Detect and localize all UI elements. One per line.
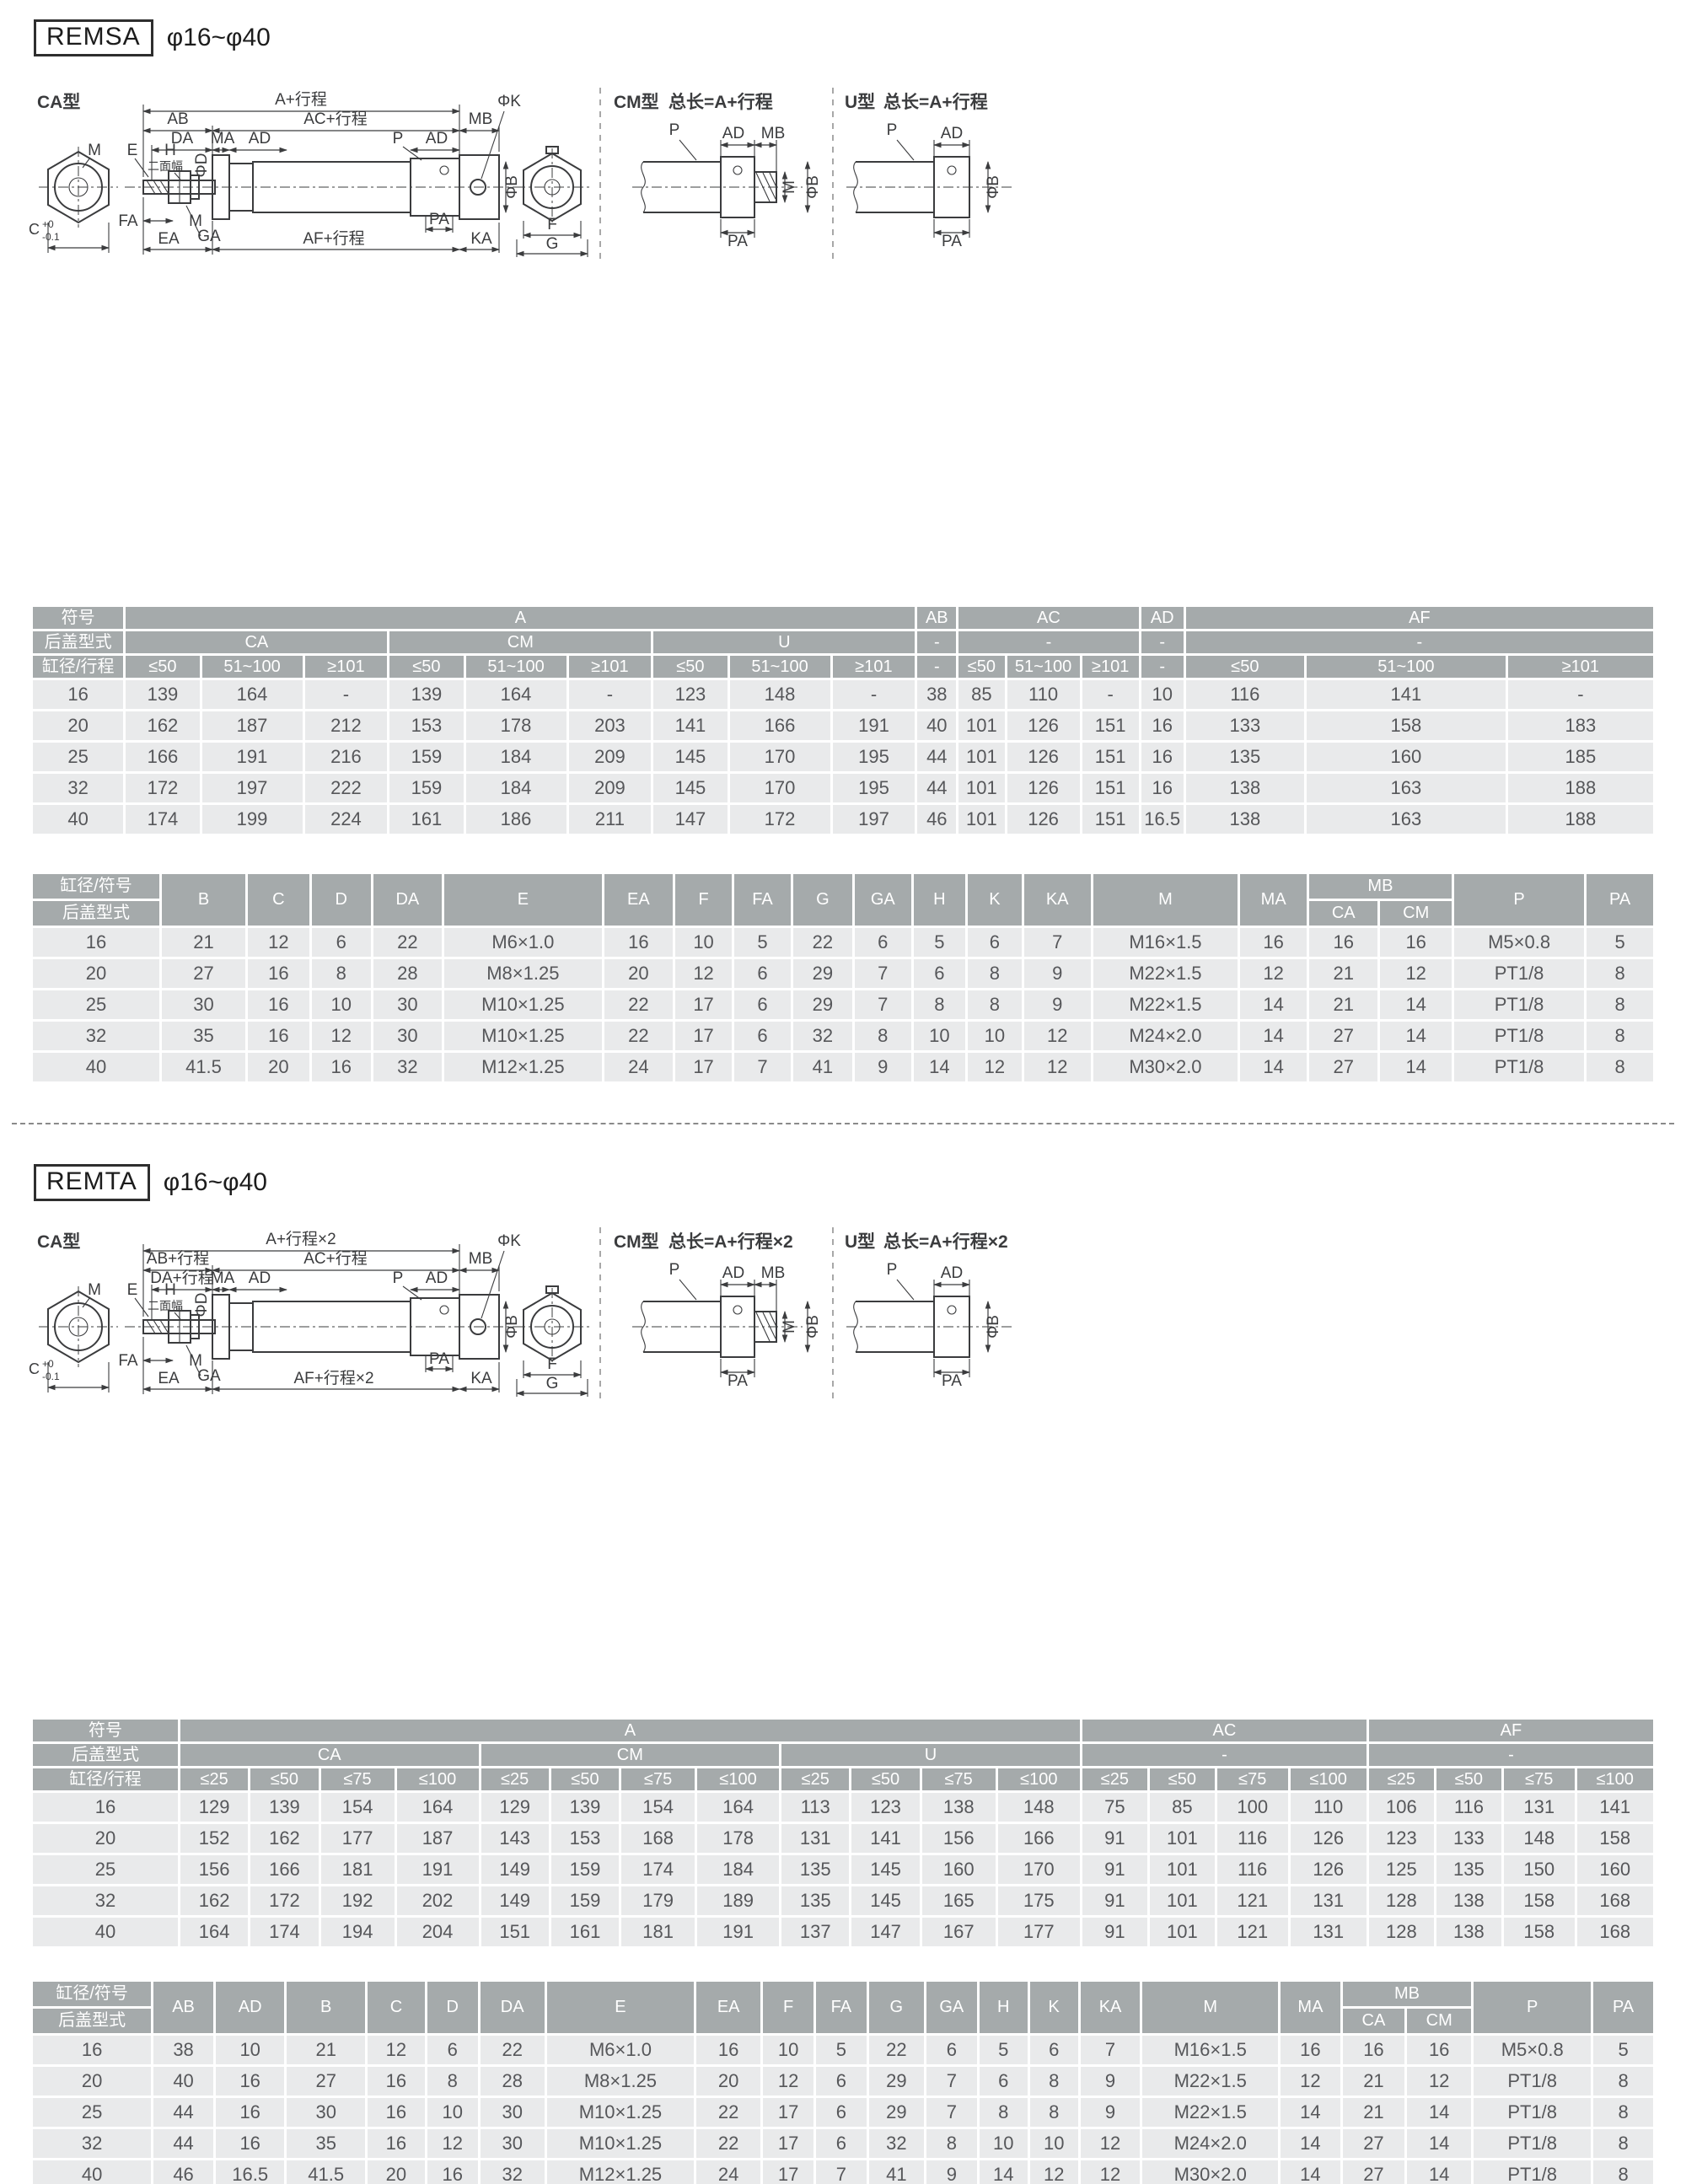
- value-cell: 20: [603, 958, 674, 990]
- value-cell: 5: [814, 2035, 867, 2066]
- column-header: -: [958, 631, 1140, 655]
- value-cell: 5: [912, 927, 966, 958]
- column-header: CA: [179, 1743, 480, 1768]
- dim-label: P: [669, 121, 680, 139]
- value-cell: M16×1.5: [1092, 927, 1239, 958]
- value-cell: PT1/8: [1473, 2128, 1592, 2160]
- value-cell: 126: [1006, 804, 1081, 835]
- value-cell: 141: [1305, 679, 1506, 711]
- value-cell: 164: [201, 679, 303, 711]
- value-cell: 110: [1289, 1792, 1367, 1823]
- column-header: H: [912, 873, 966, 927]
- table-row: 404616.541.5201632M12×1.2524177419141212…: [32, 2160, 1655, 2184]
- value-cell: M10×1.25: [545, 2128, 695, 2160]
- value-cell: 16: [1341, 2035, 1405, 2066]
- column-header: -: [1140, 631, 1184, 655]
- value-cell: 167: [921, 1917, 996, 1948]
- value-cell: 91: [1081, 1823, 1148, 1854]
- dim-label: AD: [249, 1269, 271, 1287]
- column-header: ≤100: [696, 1768, 781, 1792]
- technical-drawing: CA型 M C +0 -0.1: [0, 78, 1686, 276]
- value-cell: 170: [996, 1854, 1081, 1886]
- column-header: M: [1141, 1981, 1280, 2035]
- value-cell: 14: [1280, 2097, 1342, 2128]
- value-cell: 8: [1028, 2097, 1079, 2128]
- value-cell: 202: [395, 1886, 480, 1917]
- dimension-table: 缸径/符号后盖型式ABADBCDDAEEAFFAGGAHKKAMMAMBPPAC…: [30, 1979, 1656, 2184]
- column-header: A: [125, 606, 916, 631]
- value-cell: 8: [1586, 990, 1655, 1021]
- value-cell: 10: [912, 1021, 966, 1052]
- value-cell: 211: [567, 804, 652, 835]
- value-cell: 147: [652, 804, 728, 835]
- bore-size-cell: 25: [32, 1854, 180, 1886]
- dim-label: A+行程×2: [266, 1230, 336, 1248]
- value-cell: 30: [479, 2128, 545, 2160]
- column-header: ≥101: [303, 655, 389, 679]
- value-cell: M22×1.5: [1141, 2097, 1280, 2128]
- bore-size-cell: 32: [32, 773, 125, 804]
- column-header: 51~100: [1305, 655, 1506, 679]
- bore-size-cell: 16: [32, 927, 161, 958]
- u-type-view: U型 总长=A+行程 P AD ΦB PA: [845, 92, 1012, 250]
- value-cell: 22: [603, 1021, 674, 1052]
- catalog-page: REMSA φ16~φ40 CA型 M C +0 -0.1: [0, 0, 1686, 2184]
- value-cell: 151: [1081, 711, 1140, 742]
- value-cell: 41: [792, 1052, 853, 1083]
- value-cell: 8: [925, 2128, 978, 2160]
- column-header: B: [286, 1981, 366, 2035]
- value-cell: 135: [781, 1886, 851, 1917]
- value-cell: 17: [674, 1052, 733, 1083]
- cm-type-view: CM型 总长=A+行程 P AD MB M ΦB: [614, 92, 822, 250]
- value-cell: 177: [996, 1917, 1081, 1948]
- value-cell: 10: [1140, 679, 1184, 711]
- bore-size-cell: 40: [32, 1917, 180, 1948]
- value-cell: 5: [978, 2035, 1028, 2066]
- value-cell: 6: [925, 2035, 978, 2066]
- dim-label: AF+行程: [303, 229, 364, 248]
- dimension-table: 缸径/符号后盖型式BCDDAEEAFFAGGAHKKAMMAMBPPACACM1…: [30, 872, 1656, 1084]
- value-cell: 41: [867, 2160, 925, 2184]
- value-cell: 27: [1341, 2128, 1405, 2160]
- value-cell: 159: [389, 742, 464, 773]
- value-cell: 22: [792, 927, 853, 958]
- bore-size-cell: 40: [32, 2160, 153, 2184]
- value-cell: 8: [1586, 1052, 1655, 1083]
- value-cell: 10: [978, 2128, 1028, 2160]
- dim-label: AF+行程×2: [293, 1369, 373, 1387]
- column-header: AB: [153, 1981, 215, 2035]
- table-row: 2516619121615918420914517019544101126151…: [32, 742, 1655, 773]
- dimension-table: 符号AABACADAF后盖型式CACMU----缸径/行程≤5051~100≥1…: [30, 604, 1656, 836]
- column-header: EA: [603, 873, 674, 927]
- value-cell: 158: [1502, 1886, 1576, 1917]
- value-cell: 156: [179, 1854, 249, 1886]
- value-cell: 158: [1502, 1917, 1576, 1948]
- dim-label: C: [29, 1360, 40, 1377]
- value-cell: 32: [479, 2160, 545, 2184]
- value-cell: 16: [366, 2097, 426, 2128]
- column-header: ≥101: [1506, 655, 1654, 679]
- dim-label: P: [393, 130, 404, 148]
- value-cell: M24×2.0: [1141, 2128, 1280, 2160]
- value-cell: 164: [464, 679, 567, 711]
- value-cell: 160: [921, 1854, 996, 1886]
- value-cell: 30: [286, 2097, 366, 2128]
- bore-size-cell: 25: [32, 742, 125, 773]
- value-cell: 6: [426, 2035, 479, 2066]
- value-cell: M5×0.8: [1473, 2035, 1592, 2066]
- value-cell: 197: [831, 804, 916, 835]
- column-header: ≤50: [250, 1768, 319, 1792]
- value-cell: 22: [372, 927, 443, 958]
- column-header: CA: [1341, 2008, 1405, 2035]
- value-cell: 6: [814, 2097, 867, 2128]
- value-cell: 168: [1576, 1886, 1654, 1917]
- value-cell: 141: [652, 711, 728, 742]
- dim-label: PA: [728, 1372, 748, 1390]
- column-header: CM: [389, 631, 652, 655]
- column-header: ≤25: [179, 1768, 249, 1792]
- bore-size-cell: 32: [32, 2128, 153, 2160]
- value-cell: 106: [1367, 1792, 1435, 1823]
- value-cell: 116: [1184, 679, 1305, 711]
- value-cell: 8: [966, 958, 1023, 990]
- value-cell: 16: [214, 2128, 286, 2160]
- value-cell: 38: [916, 679, 958, 711]
- column-header: AD: [214, 1981, 286, 2035]
- value-cell: 12: [966, 1052, 1023, 1083]
- value-cell: 16: [1140, 711, 1184, 742]
- value-cell: 10: [214, 2035, 286, 2066]
- column-header: E: [443, 873, 603, 927]
- column-header: 51~100: [1006, 655, 1081, 679]
- value-cell: 6: [1028, 2035, 1079, 2066]
- value-cell: 137: [781, 1917, 851, 1948]
- value-cell: 184: [464, 742, 567, 773]
- value-cell: 147: [851, 1917, 921, 1948]
- dim-label: A+行程: [275, 90, 327, 109]
- value-cell: 8: [1586, 1021, 1655, 1052]
- column-header: D: [426, 1981, 479, 2035]
- dim-label: MA: [211, 130, 235, 148]
- value-cell: 14: [912, 1052, 966, 1083]
- column-header: ≤25: [1081, 1768, 1148, 1792]
- value-cell: 216: [303, 742, 389, 773]
- value-cell: 195: [831, 742, 916, 773]
- table-row: 16139164-139164-123148-3885110-10116141-: [32, 679, 1655, 711]
- value-cell: 12: [1079, 2160, 1141, 2184]
- value-cell: 199: [201, 804, 303, 835]
- value-cell: 8: [1592, 2160, 1655, 2184]
- dim-label: F: [547, 1355, 557, 1373]
- dim-label: AD: [426, 1269, 448, 1287]
- value-cell: 7: [814, 2160, 867, 2184]
- value-cell: 12: [674, 958, 733, 990]
- remta-technical-drawing: CA型 M C +0 -0.1: [0, 1217, 1686, 1415]
- value-cell: 7: [925, 2097, 978, 2128]
- value-cell: 6: [853, 927, 912, 958]
- value-cell: M16×1.5: [1141, 2035, 1280, 2066]
- value-cell: 166: [125, 742, 201, 773]
- value-cell: PT1/8: [1452, 1021, 1585, 1052]
- value-cell: 191: [696, 1917, 781, 1948]
- main-side-view: A+行程×2 AB+行程 AC+行程 MB ΦK DA+行程 MA AD P A…: [118, 1230, 521, 1394]
- value-cell: 126: [1289, 1823, 1367, 1854]
- value-cell: 6: [733, 958, 792, 990]
- dim-label: F: [547, 216, 557, 233]
- dim-label: G: [546, 1375, 559, 1393]
- value-cell: 14: [1406, 2128, 1473, 2160]
- column-header: PA: [1592, 1981, 1655, 2035]
- value-cell: 159: [550, 1886, 620, 1917]
- value-cell: 129: [179, 1792, 249, 1823]
- value-cell: 46: [916, 804, 958, 835]
- value-cell: M30×2.0: [1141, 2160, 1280, 2184]
- bore-size-cell: 25: [32, 990, 161, 1021]
- bore-size-cell: 32: [32, 1021, 161, 1052]
- value-cell: PT1/8: [1473, 2160, 1592, 2184]
- dim-label: P: [669, 1261, 680, 1279]
- value-cell: 16: [214, 2066, 286, 2097]
- column-header: CM: [480, 1743, 781, 1768]
- remsa-series-header: REMSA φ16~φ40: [34, 19, 1686, 57]
- value-cell: 32: [792, 1021, 853, 1052]
- value-cell: 138: [921, 1792, 996, 1823]
- column-header: H: [978, 1981, 1028, 2035]
- column-header: GA: [853, 873, 912, 927]
- value-cell: 131: [1289, 1886, 1367, 1917]
- column-header: C: [366, 1981, 426, 2035]
- value-cell: 161: [550, 1917, 620, 1948]
- value-cell: 209: [567, 742, 652, 773]
- value-cell: 152: [179, 1823, 249, 1854]
- bore-size-cell: 16: [32, 2035, 153, 2066]
- value-cell: M10×1.25: [443, 1021, 603, 1052]
- value-cell: PT1/8: [1452, 958, 1585, 990]
- value-cell: 12: [1379, 958, 1452, 990]
- value-cell: 16: [1140, 742, 1184, 773]
- value-cell: 145: [851, 1854, 921, 1886]
- value-cell: 6: [966, 927, 1023, 958]
- value-cell: 148: [728, 679, 831, 711]
- value-cell: 141: [851, 1823, 921, 1854]
- value-cell: -: [303, 679, 389, 711]
- value-cell: 204: [395, 1917, 480, 1948]
- dim-label: G: [546, 235, 559, 253]
- table-row: 2515616618119114915917418413514516017091…: [32, 1854, 1655, 1886]
- end-view-hex: F G: [515, 147, 589, 257]
- table-row: 2530161030M10×1.2522176297889M22×1.51421…: [32, 990, 1655, 1021]
- column-header: AB: [916, 606, 958, 631]
- value-cell: 135: [1184, 742, 1305, 773]
- value-cell: 138: [1184, 773, 1305, 804]
- value-cell: 10: [1028, 2128, 1079, 2160]
- value-cell: 12: [247, 927, 311, 958]
- value-cell: 20: [247, 1052, 311, 1083]
- value-cell: 30: [161, 990, 247, 1021]
- column-header: AF: [1367, 1719, 1654, 1743]
- dim-label: CM型: [614, 93, 659, 112]
- remta-series-header: REMTA φ16~φ40: [34, 1163, 1686, 1202]
- column-header: K: [966, 873, 1023, 927]
- column-header: ≤25: [480, 1768, 550, 1792]
- value-cell: 44: [153, 2128, 215, 2160]
- value-cell: 151: [480, 1917, 550, 1948]
- value-cell: 75: [1081, 1792, 1148, 1823]
- value-cell: 16: [247, 990, 311, 1021]
- column-header: ≤100: [395, 1768, 480, 1792]
- value-cell: 161: [389, 804, 464, 835]
- value-cell: 164: [696, 1792, 781, 1823]
- value-cell: 138: [1184, 804, 1305, 835]
- value-cell: 189: [696, 1886, 781, 1917]
- remsa-technical-drawing: CA型 M C +0 -0.1: [0, 78, 1686, 276]
- value-cell: 27: [286, 2066, 366, 2097]
- table-row: 4041.5201632M12×1.2524177419141212M30×2.…: [32, 1052, 1655, 1083]
- value-cell: 44: [916, 773, 958, 804]
- column-header: ≤50: [851, 1768, 921, 1792]
- value-cell: 21: [1307, 958, 1379, 990]
- dim-label: M: [88, 1281, 101, 1299]
- value-cell: 175: [996, 1886, 1081, 1917]
- value-cell: 170: [728, 773, 831, 804]
- value-cell: 17: [762, 2128, 815, 2160]
- value-cell: 14: [978, 2160, 1028, 2184]
- value-cell: 101: [1148, 1886, 1216, 1917]
- column-header: -: [1140, 655, 1184, 679]
- value-cell: 116: [1435, 1792, 1502, 1823]
- dim-label: P: [887, 1261, 898, 1279]
- column-header: CM: [1406, 2008, 1473, 2035]
- value-cell: 164: [395, 1792, 480, 1823]
- dim-label: ΦB: [985, 175, 1002, 199]
- value-cell: 174: [250, 1917, 319, 1948]
- value-cell: 110: [1006, 679, 1081, 711]
- value-cell: 141: [1576, 1792, 1654, 1823]
- dim-label: U型: [845, 1232, 875, 1252]
- value-cell: 22: [603, 990, 674, 1021]
- value-cell: 7: [853, 990, 912, 1021]
- value-cell: 16: [1239, 927, 1308, 958]
- value-cell: 8: [912, 990, 966, 1021]
- value-cell: 154: [620, 1792, 696, 1823]
- column-header: EA: [695, 1981, 762, 2035]
- value-cell: 135: [781, 1854, 851, 1886]
- value-cell: 30: [372, 990, 443, 1021]
- value-cell: 20: [695, 2066, 762, 2097]
- value-cell: 21: [161, 927, 247, 958]
- value-cell: 145: [652, 742, 728, 773]
- bore-size-cell: 20: [32, 2066, 153, 2097]
- value-cell: 100: [1216, 1792, 1289, 1823]
- value-cell: 16: [695, 2035, 762, 2066]
- dim-label: MB: [469, 110, 493, 128]
- value-cell: 14: [1280, 2128, 1342, 2160]
- value-cell: 185: [1506, 742, 1654, 773]
- value-cell: 12: [310, 1021, 372, 1052]
- value-cell: 22: [695, 2097, 762, 2128]
- value-cell: 6: [912, 958, 966, 990]
- dim-label: AD: [722, 125, 744, 142]
- value-cell: 8: [310, 958, 372, 990]
- dim-label: -0.1: [42, 231, 60, 243]
- value-cell: M6×1.0: [545, 2035, 695, 2066]
- value-cell: 12: [426, 2128, 479, 2160]
- value-cell: 183: [1506, 711, 1654, 742]
- column-header: 符号: [32, 606, 125, 631]
- value-cell: 14: [1379, 990, 1452, 1021]
- dim-label: AD: [941, 125, 963, 142]
- dim-label: MB: [469, 1250, 493, 1268]
- value-cell: 191: [395, 1854, 480, 1886]
- column-header: FA: [814, 1981, 867, 2035]
- value-cell: 126: [1006, 711, 1081, 742]
- value-cell: 101: [1148, 1917, 1216, 1948]
- value-cell: PT1/8: [1452, 990, 1585, 1021]
- value-cell: 24: [695, 2160, 762, 2184]
- value-cell: 91: [1081, 1917, 1148, 1948]
- column-header: CA: [1307, 900, 1379, 927]
- value-cell: 148: [1502, 1823, 1576, 1854]
- value-cell: 32: [867, 2128, 925, 2160]
- value-cell: 14: [1239, 1052, 1308, 1083]
- column-header: CA: [125, 631, 389, 655]
- value-cell: 29: [867, 2066, 925, 2097]
- value-cell: 6: [733, 990, 792, 1021]
- column-header: ≥101: [567, 655, 652, 679]
- value-cell: 29: [792, 958, 853, 990]
- dim-label: P: [887, 121, 898, 139]
- table-row: 162112622M6×1.016105226567M16×1.5161616M…: [32, 927, 1655, 958]
- dim-label: ΦB: [804, 1315, 822, 1339]
- value-cell: 14: [1379, 1052, 1452, 1083]
- value-cell: PT1/8: [1473, 2066, 1592, 2097]
- value-cell: 6: [310, 927, 372, 958]
- dim-label: 总长=A+行程: [668, 92, 773, 112]
- technical-drawing: CA型 M C +0 -0.1: [0, 1217, 1686, 1415]
- value-cell: 181: [620, 1917, 696, 1948]
- table-row: 3217219722215918420914517019544101126151…: [32, 773, 1655, 804]
- column-header: P: [1473, 1981, 1592, 2035]
- value-cell: 8: [426, 2066, 479, 2097]
- dim-label: 二面幅: [148, 159, 183, 173]
- value-cell: 177: [319, 1823, 395, 1854]
- column-header: 51~100: [728, 655, 831, 679]
- bore-size-cell: 20: [32, 711, 125, 742]
- value-cell: 40: [153, 2066, 215, 2097]
- value-cell: 16: [366, 2128, 426, 2160]
- value-cell: 27: [1341, 2160, 1405, 2184]
- column-header: MB: [1341, 1981, 1473, 2008]
- column-header: 后盖型式: [32, 1743, 180, 1768]
- column-header: FA: [733, 873, 792, 927]
- value-cell: -: [567, 679, 652, 711]
- dim-label: C: [29, 221, 40, 238]
- table-row: 3235161230M10×1.2522176328101012M24×2.01…: [32, 1021, 1655, 1052]
- value-cell: 14: [1406, 2097, 1473, 2128]
- value-cell: 24: [603, 1052, 674, 1083]
- value-cell: 162: [125, 711, 201, 742]
- dim-label: FA: [118, 1352, 138, 1370]
- value-cell: M12×1.25: [443, 1052, 603, 1083]
- value-cell: 126: [1006, 742, 1081, 773]
- value-cell: 14: [1280, 2160, 1342, 2184]
- value-cell: M30×2.0: [1092, 1052, 1239, 1083]
- value-cell: 170: [728, 742, 831, 773]
- value-cell: 16: [1307, 927, 1379, 958]
